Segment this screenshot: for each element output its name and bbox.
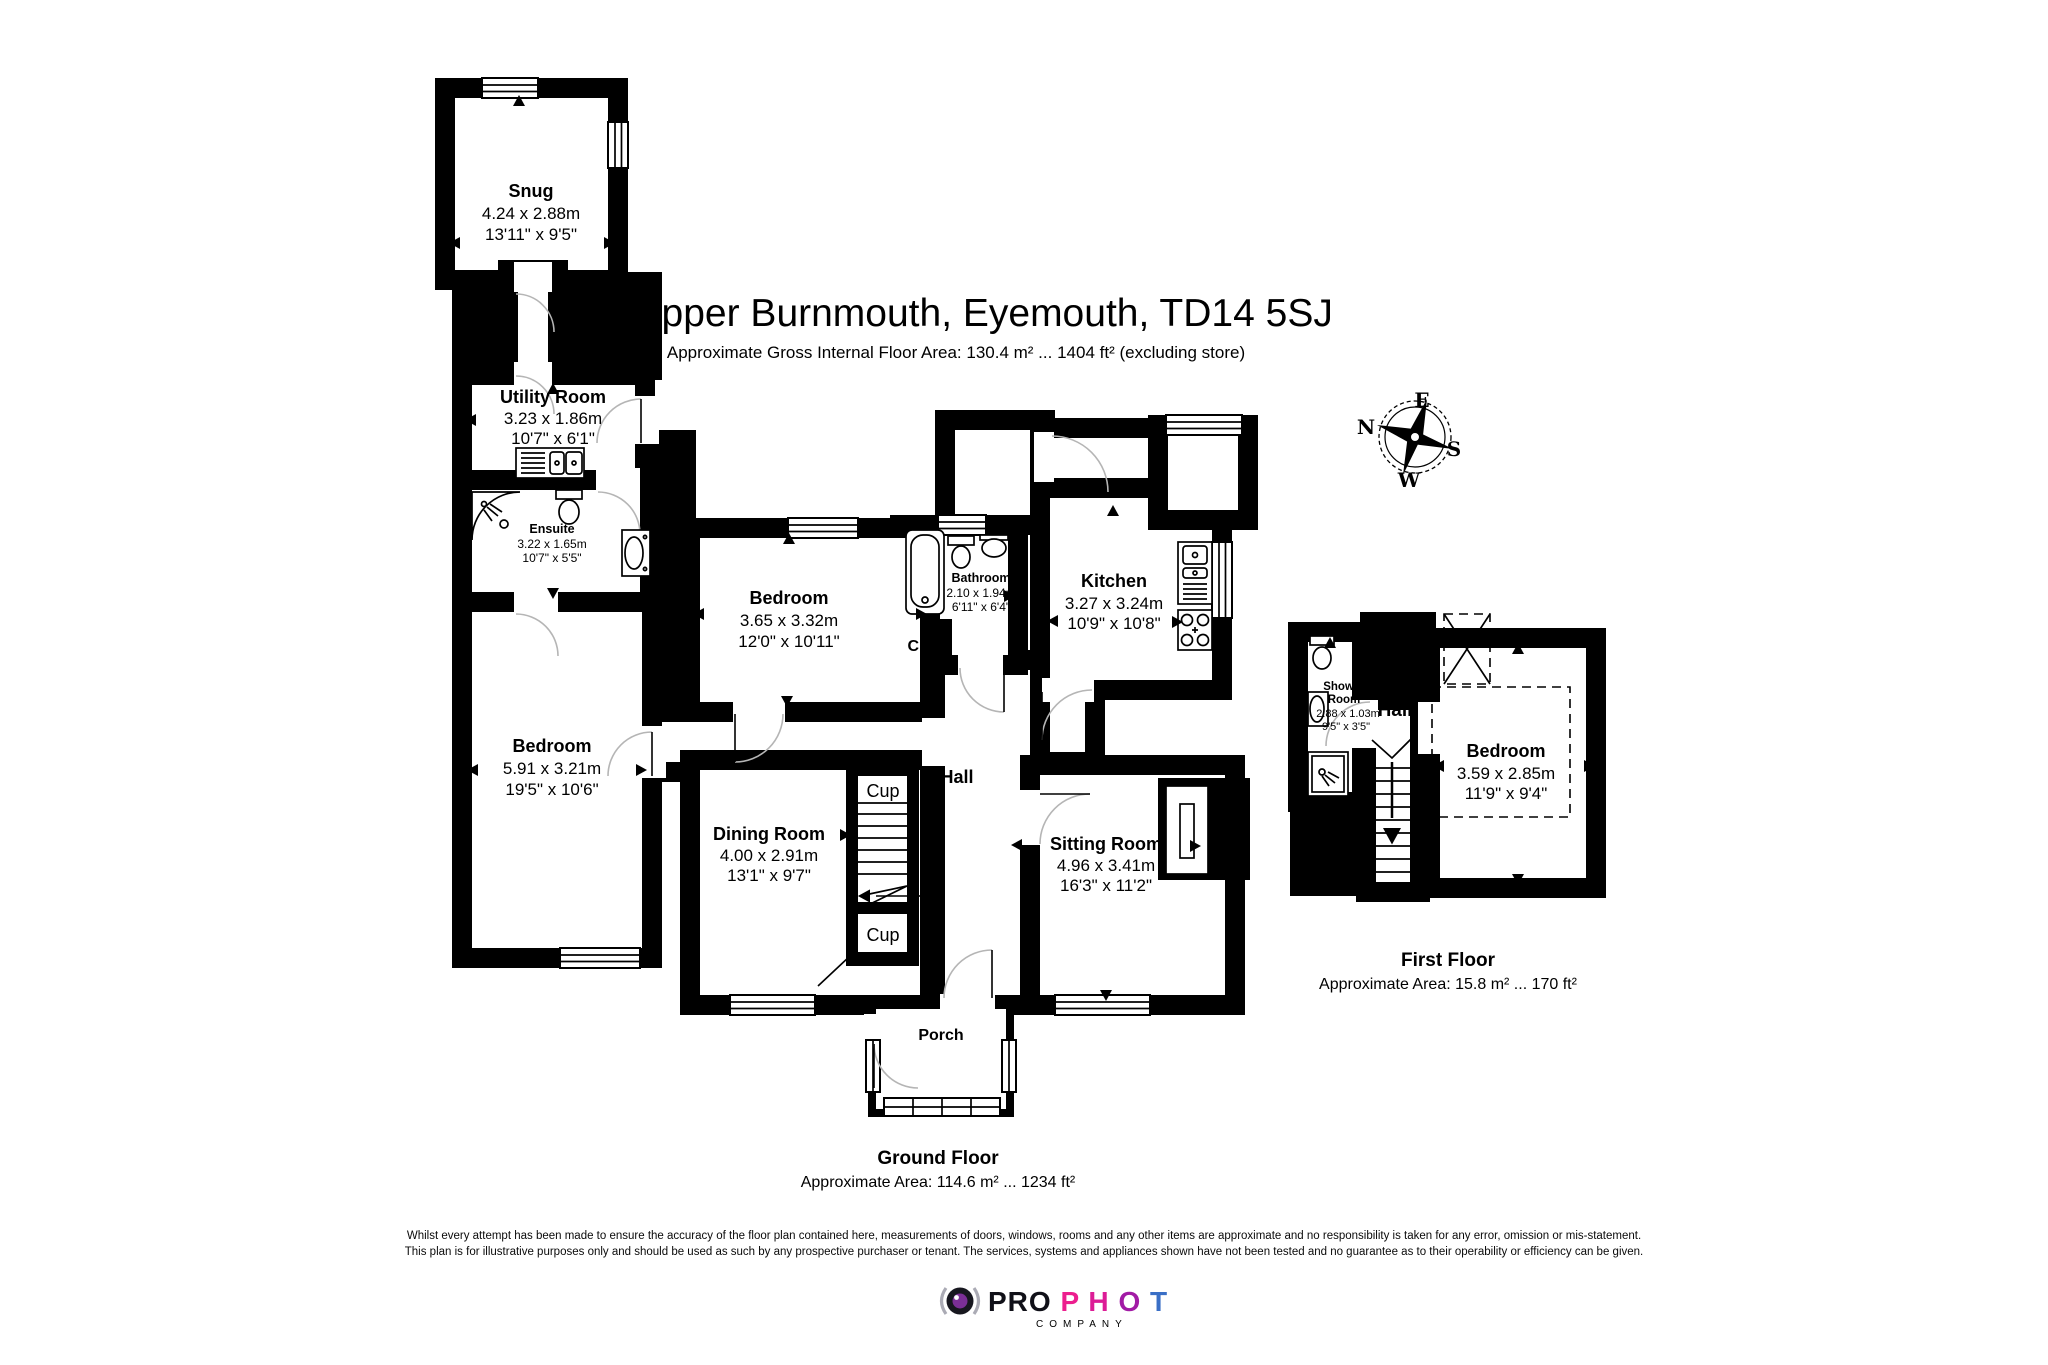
shower-room-imperial: 9'5" x 3'5" <box>1322 721 1370 733</box>
utility-imperial: 10'7" x 6'1" <box>511 429 595 448</box>
bedroom-middle-metric: 3.65 x 3.32m <box>740 611 838 630</box>
disclaimer-line-1: Whilst every attempt has been made to en… <box>0 1228 2048 1244</box>
ground-floor-plan: Snug 4.24 x 2.88m 13'11" x 9'5" Utility … <box>445 78 1250 1191</box>
ensuite-basin-icon <box>622 530 650 576</box>
sitting-imperial: 16'3" x 11'2" <box>1060 876 1152 895</box>
dining-imperial: 13'1" x 9'7" <box>727 866 811 885</box>
bedroom-first-metric: 3.59 x 2.85m <box>1457 764 1555 783</box>
disclaimer: Whilst every attempt has been made to en… <box>0 1228 2048 1260</box>
kitchen-name: Kitchen <box>1081 571 1147 591</box>
bedroom-middle-imperial: 12'0" x 10'11" <box>738 632 839 651</box>
prophoto-logo: PRO P H O T O COMPANY <box>936 1278 1176 1339</box>
kitchen-metric: 3.27 x 3.24m <box>1065 594 1163 613</box>
door-opening <box>733 702 785 724</box>
floor-plan-canvas: Snug 4.24 x 2.88m 13'11" x 9'5" Utility … <box>0 0 2048 1365</box>
prophoto-logo-graphic: PRO P H O T O COMPANY <box>936 1278 1176 1334</box>
first-floor-plan: Shower Room 2.88 x 1.03m 9'5" x 3'5" Hal… <box>1290 612 1596 993</box>
disclaimer-line-2: This plan is for illustrative purposes o… <box>0 1244 2048 1260</box>
door-opening <box>596 468 640 494</box>
ensuite-metric: 3.22 x 1.65m <box>517 537 586 551</box>
door-opening <box>958 653 1003 675</box>
door-opening <box>940 994 995 1016</box>
utility-metric: 3.23 x 1.86m <box>504 409 602 428</box>
camera-icon <box>942 1288 979 1315</box>
header: 13 Upper Burnmouth, Eyemouth, TD14 5SJ A… <box>356 292 1556 363</box>
dining-metric: 4.00 x 2.91m <box>720 846 818 865</box>
dining-name: Dining Room <box>713 824 825 844</box>
door-opening <box>1020 790 1042 845</box>
shower-room-name-2: Room <box>1328 694 1361 706</box>
cupboard-label: Cup <box>866 781 899 801</box>
room-store <box>1158 425 1248 520</box>
logo-letter: P <box>1060 1286 1079 1317</box>
kitchen-imperial: 10'9" x 10'8" <box>1067 614 1160 633</box>
bedroom-left-name: Bedroom <box>512 736 591 756</box>
shower-room-name-1: Shower <box>1323 681 1365 693</box>
bedroom-left-imperial: 19'5" x 10'6" <box>505 780 598 799</box>
bathtub-icon <box>906 530 944 614</box>
ground-floor-title: Ground Floor <box>877 1148 999 1169</box>
porch-label: Porch <box>918 1027 963 1044</box>
ground-floor-area: Approximate Area: 114.6 m² ... 1234 ft² <box>801 1174 1076 1191</box>
logo-letter: T <box>1150 1286 1168 1317</box>
door-opening <box>1418 702 1442 754</box>
bathroom-basin-icon <box>980 535 1008 557</box>
bedroom-middle-name: Bedroom <box>749 588 828 608</box>
room-porch <box>872 1005 1010 1113</box>
page-subtitle: Approximate Gross Internal Floor Area: 1… <box>356 343 1556 363</box>
bathroom-name: Bathroom <box>951 571 1010 585</box>
bathroom-metric: 2.10 x 1.94m <box>946 586 1015 600</box>
sitting-name: Sitting Room <box>1050 834 1162 854</box>
utility-sink-icon <box>516 448 584 478</box>
door-opening <box>514 262 552 292</box>
logo-letter: H <box>1088 1286 1109 1317</box>
utility-name: Utility Room <box>500 387 606 407</box>
first-floor-area: Approximate Area: 15.8 m² ... 170 ft² <box>1319 976 1578 993</box>
snug-metric: 4.24 x 2.88m <box>482 204 580 223</box>
logo-letter: O <box>1118 1286 1141 1317</box>
shower-tray-icon <box>1308 752 1348 796</box>
bedroom-left-metric: 5.91 x 3.21m <box>503 759 601 778</box>
bathroom-imperial: 6'11" x 6'4" <box>952 600 1010 614</box>
compass-w: W <box>1397 468 1421 492</box>
bedroom-first-name: Bedroom <box>1466 741 1545 761</box>
room-bedroom-first <box>1430 638 1596 888</box>
shower-room-metric: 2.88 x 1.03m <box>1316 708 1380 720</box>
sitting-bay-window <box>1158 778 1250 880</box>
door-opening <box>922 718 950 766</box>
first-floor-title: First Floor <box>1401 950 1496 971</box>
kitchen-sink-icon <box>1178 542 1212 604</box>
hob-icon <box>1178 610 1212 650</box>
svg-text:PRO P H O: PRO P H O T O <box>988 1286 1176 1317</box>
snug-name: Snug <box>509 181 554 201</box>
hall-label: Hall <box>940 767 973 787</box>
compass-s: S <box>1447 437 1461 461</box>
page-title: 13 Upper Burnmouth, Eyemouth, TD14 5SJ <box>356 292 1556 336</box>
cupboard-label: Cup <box>866 925 899 945</box>
hall-first-label: Hall <box>1378 700 1413 721</box>
cupboard-label: Cup <box>907 638 938 655</box>
compass-e: E <box>1414 388 1429 412</box>
compass-n: N <box>1357 415 1375 439</box>
bedroom-first-imperial: 11'9" x 9'4" <box>1465 784 1548 803</box>
logo-company: COMPANY <box>1036 1319 1128 1330</box>
door-opening <box>633 396 659 444</box>
ensuite-toilet-icon <box>556 490 582 524</box>
ensuite-imperial: 10'7" x 5'5" <box>522 551 581 565</box>
door-opening <box>1034 432 1054 482</box>
sitting-metric: 4.96 x 3.41m <box>1057 856 1155 875</box>
snug-imperial: 13'11" x 9'5" <box>485 225 577 244</box>
compass-rose: N E S W <box>1357 388 1461 492</box>
ensuite-name: Ensuite <box>529 522 574 536</box>
logo-pro: PRO <box>988 1286 1052 1317</box>
